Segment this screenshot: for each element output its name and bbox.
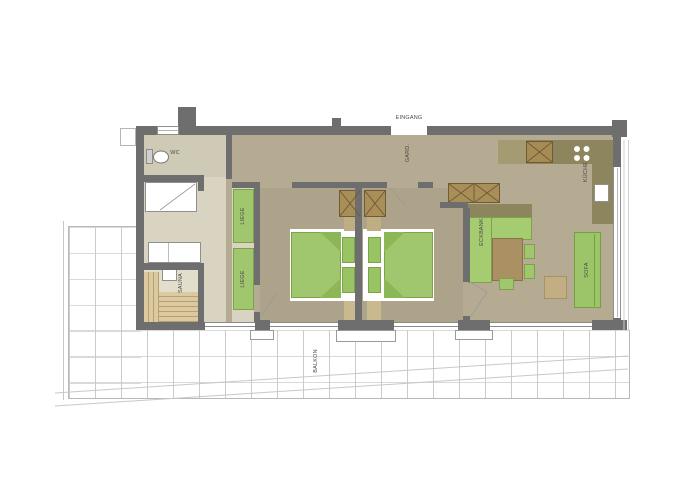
label-cloakroom: GARD. — [405, 144, 411, 162]
wall-bedrooms-top-1 — [292, 182, 387, 188]
label-lounger-2: LIEGE — [240, 270, 246, 287]
wall-living-left-stub — [463, 316, 470, 322]
wall-bath-divider — [136, 175, 204, 182]
exterior-box — [120, 128, 136, 146]
window-top — [157, 126, 179, 135]
exterior-wall-top-1 — [136, 126, 157, 135]
bed-1-pillow-top — [342, 237, 355, 263]
floor-wc-room — [144, 135, 226, 177]
exterior-wall-top-3 — [427, 126, 612, 135]
wall-bedrooms-center — [355, 182, 362, 322]
site-boundary-line — [63, 221, 64, 400]
bed-1-pillow-bottom — [342, 267, 355, 293]
toilet-tank — [146, 149, 153, 164]
bed-2-wardrobe — [364, 190, 386, 217]
wellness-bench-divider — [168, 243, 169, 262]
floor-plan: EINGANG GARD. WC SAUNA LIEGE LIEGE KÜCHE… — [0, 0, 700, 500]
wall-wc-right — [226, 135, 232, 179]
dining-table — [492, 238, 523, 281]
dining-stool-2 — [524, 264, 535, 279]
label-kitchen: KÜCHE — [583, 162, 589, 182]
dining-stool-3 — [499, 278, 514, 290]
bed-2-foot-runner — [367, 301, 381, 322]
wall-bath-nub — [198, 175, 204, 191]
sauna-bench-left — [144, 272, 159, 322]
exterior-wall-left — [136, 135, 144, 330]
sill-2 — [336, 330, 396, 342]
wall-stub-top — [332, 118, 341, 126]
exterior-wall-bottom-left — [136, 322, 205, 330]
label-corner-bench: ECKBANK — [479, 218, 485, 246]
hall-wardrobe — [448, 183, 500, 203]
sill-3 — [455, 330, 493, 340]
label-balcony: BALKON — [313, 349, 319, 373]
chimney — [178, 107, 196, 126]
kitchen-appliance — [594, 184, 609, 202]
wellness-bench — [148, 242, 201, 263]
exterior-wall-right-top — [613, 137, 621, 167]
bed-2-pillow-top — [368, 237, 381, 263]
coffee-table — [544, 276, 567, 299]
bed-2-pillow-bottom — [368, 267, 381, 293]
sofa-backrest-line — [594, 234, 595, 306]
label-sofa: SOFA — [584, 262, 590, 277]
label-sauna: SAUNA — [178, 273, 184, 293]
wall-bedrooms-top-2 — [418, 182, 433, 188]
sill-1 — [250, 330, 274, 340]
wall-bedroom1-left — [254, 188, 260, 285]
kitchen-counter-right — [592, 140, 613, 224]
window-sill-lines-right — [624, 140, 629, 330]
shower — [145, 182, 197, 212]
wall-bedroom1-left-stub — [254, 312, 260, 322]
wall-sauna-top — [140, 263, 204, 270]
label-wc: WC — [170, 150, 180, 156]
wall-sauna-right — [198, 270, 204, 322]
corner-bench-backrest — [466, 204, 532, 217]
label-lounger-1: LIEGE — [240, 207, 246, 224]
exterior-wall-bottom-right — [592, 320, 627, 330]
exterior-wall-top-2 — [179, 126, 391, 135]
window-right — [613, 167, 621, 318]
bed-2-headboard — [367, 217, 381, 231]
label-entrance: EINGANG — [396, 115, 423, 121]
kitchen-sink-unit — [526, 141, 553, 163]
wall-living-left — [463, 208, 470, 282]
dining-stool-1 — [524, 244, 535, 259]
kitchen-counter-left — [498, 140, 526, 164]
wall-stub-top-right — [612, 120, 627, 137]
